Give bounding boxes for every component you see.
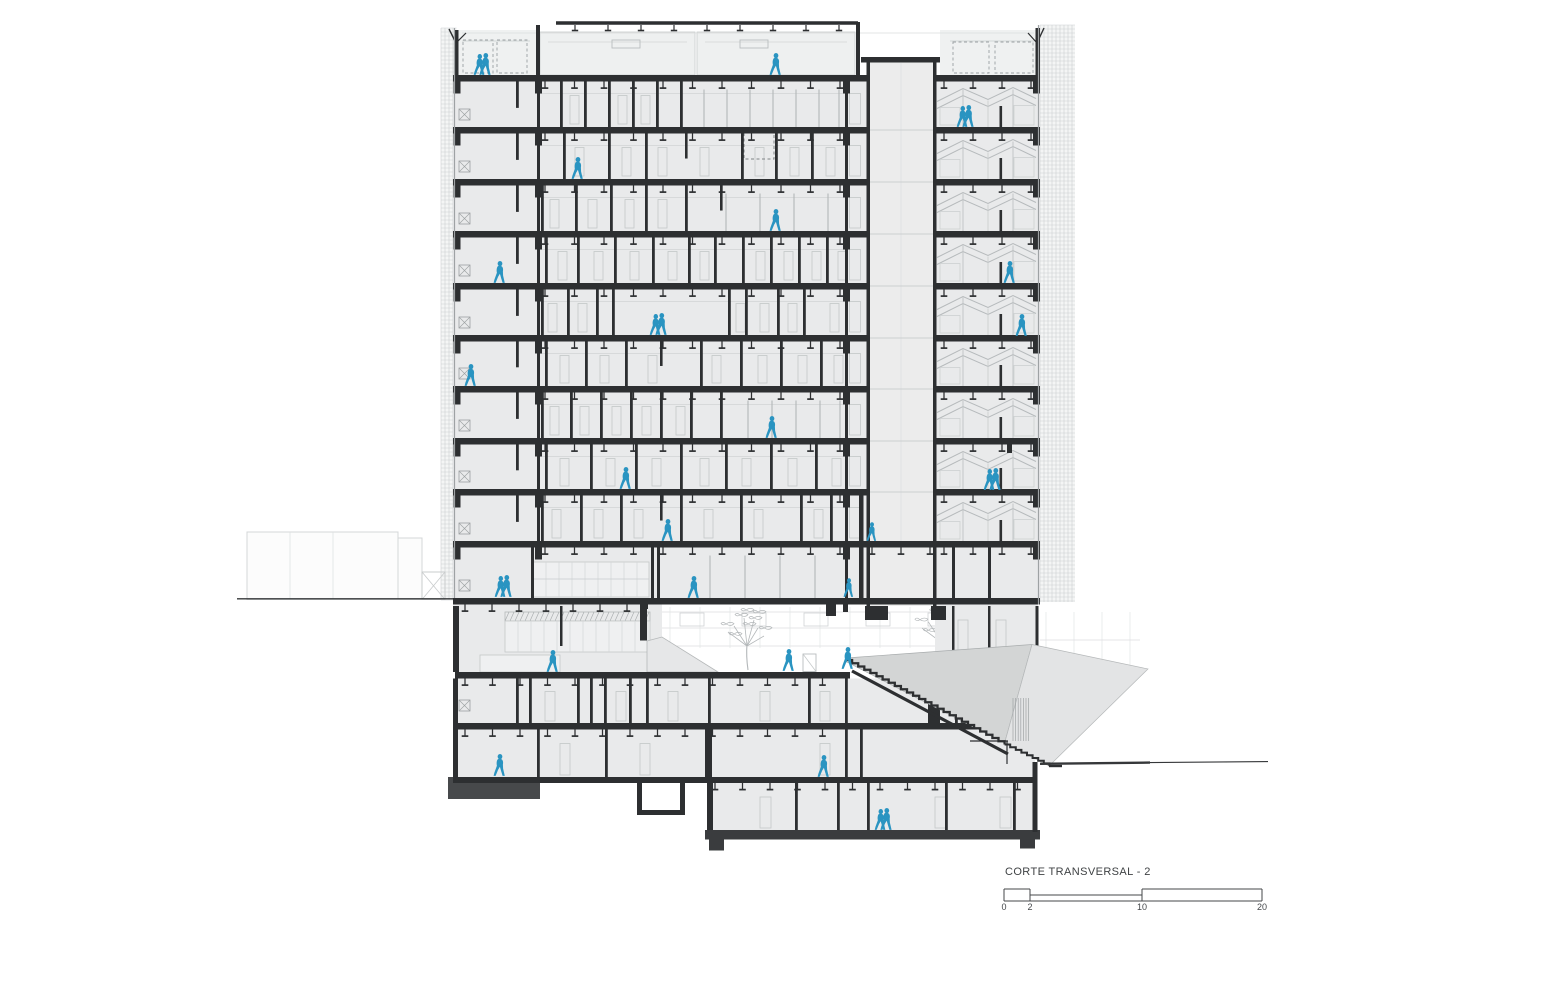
person-figure: [783, 649, 794, 671]
scale-label-2: 2: [1021, 902, 1039, 912]
scale-label-20: 20: [1253, 902, 1271, 912]
scale-label-10: 10: [1133, 902, 1151, 912]
scale-bar: [1004, 889, 1262, 901]
drawing-title: CORTE TRANSVERSAL - 2: [1005, 866, 1151, 878]
drawing-sheet: { "title": "CORTE TRANSVERSAL - 2", "sca…: [0, 0, 1545, 1000]
scale-label-0: 0: [995, 902, 1013, 912]
section-drawing-canvas: [0, 0, 1545, 1000]
tree-line-art: [721, 608, 772, 670]
